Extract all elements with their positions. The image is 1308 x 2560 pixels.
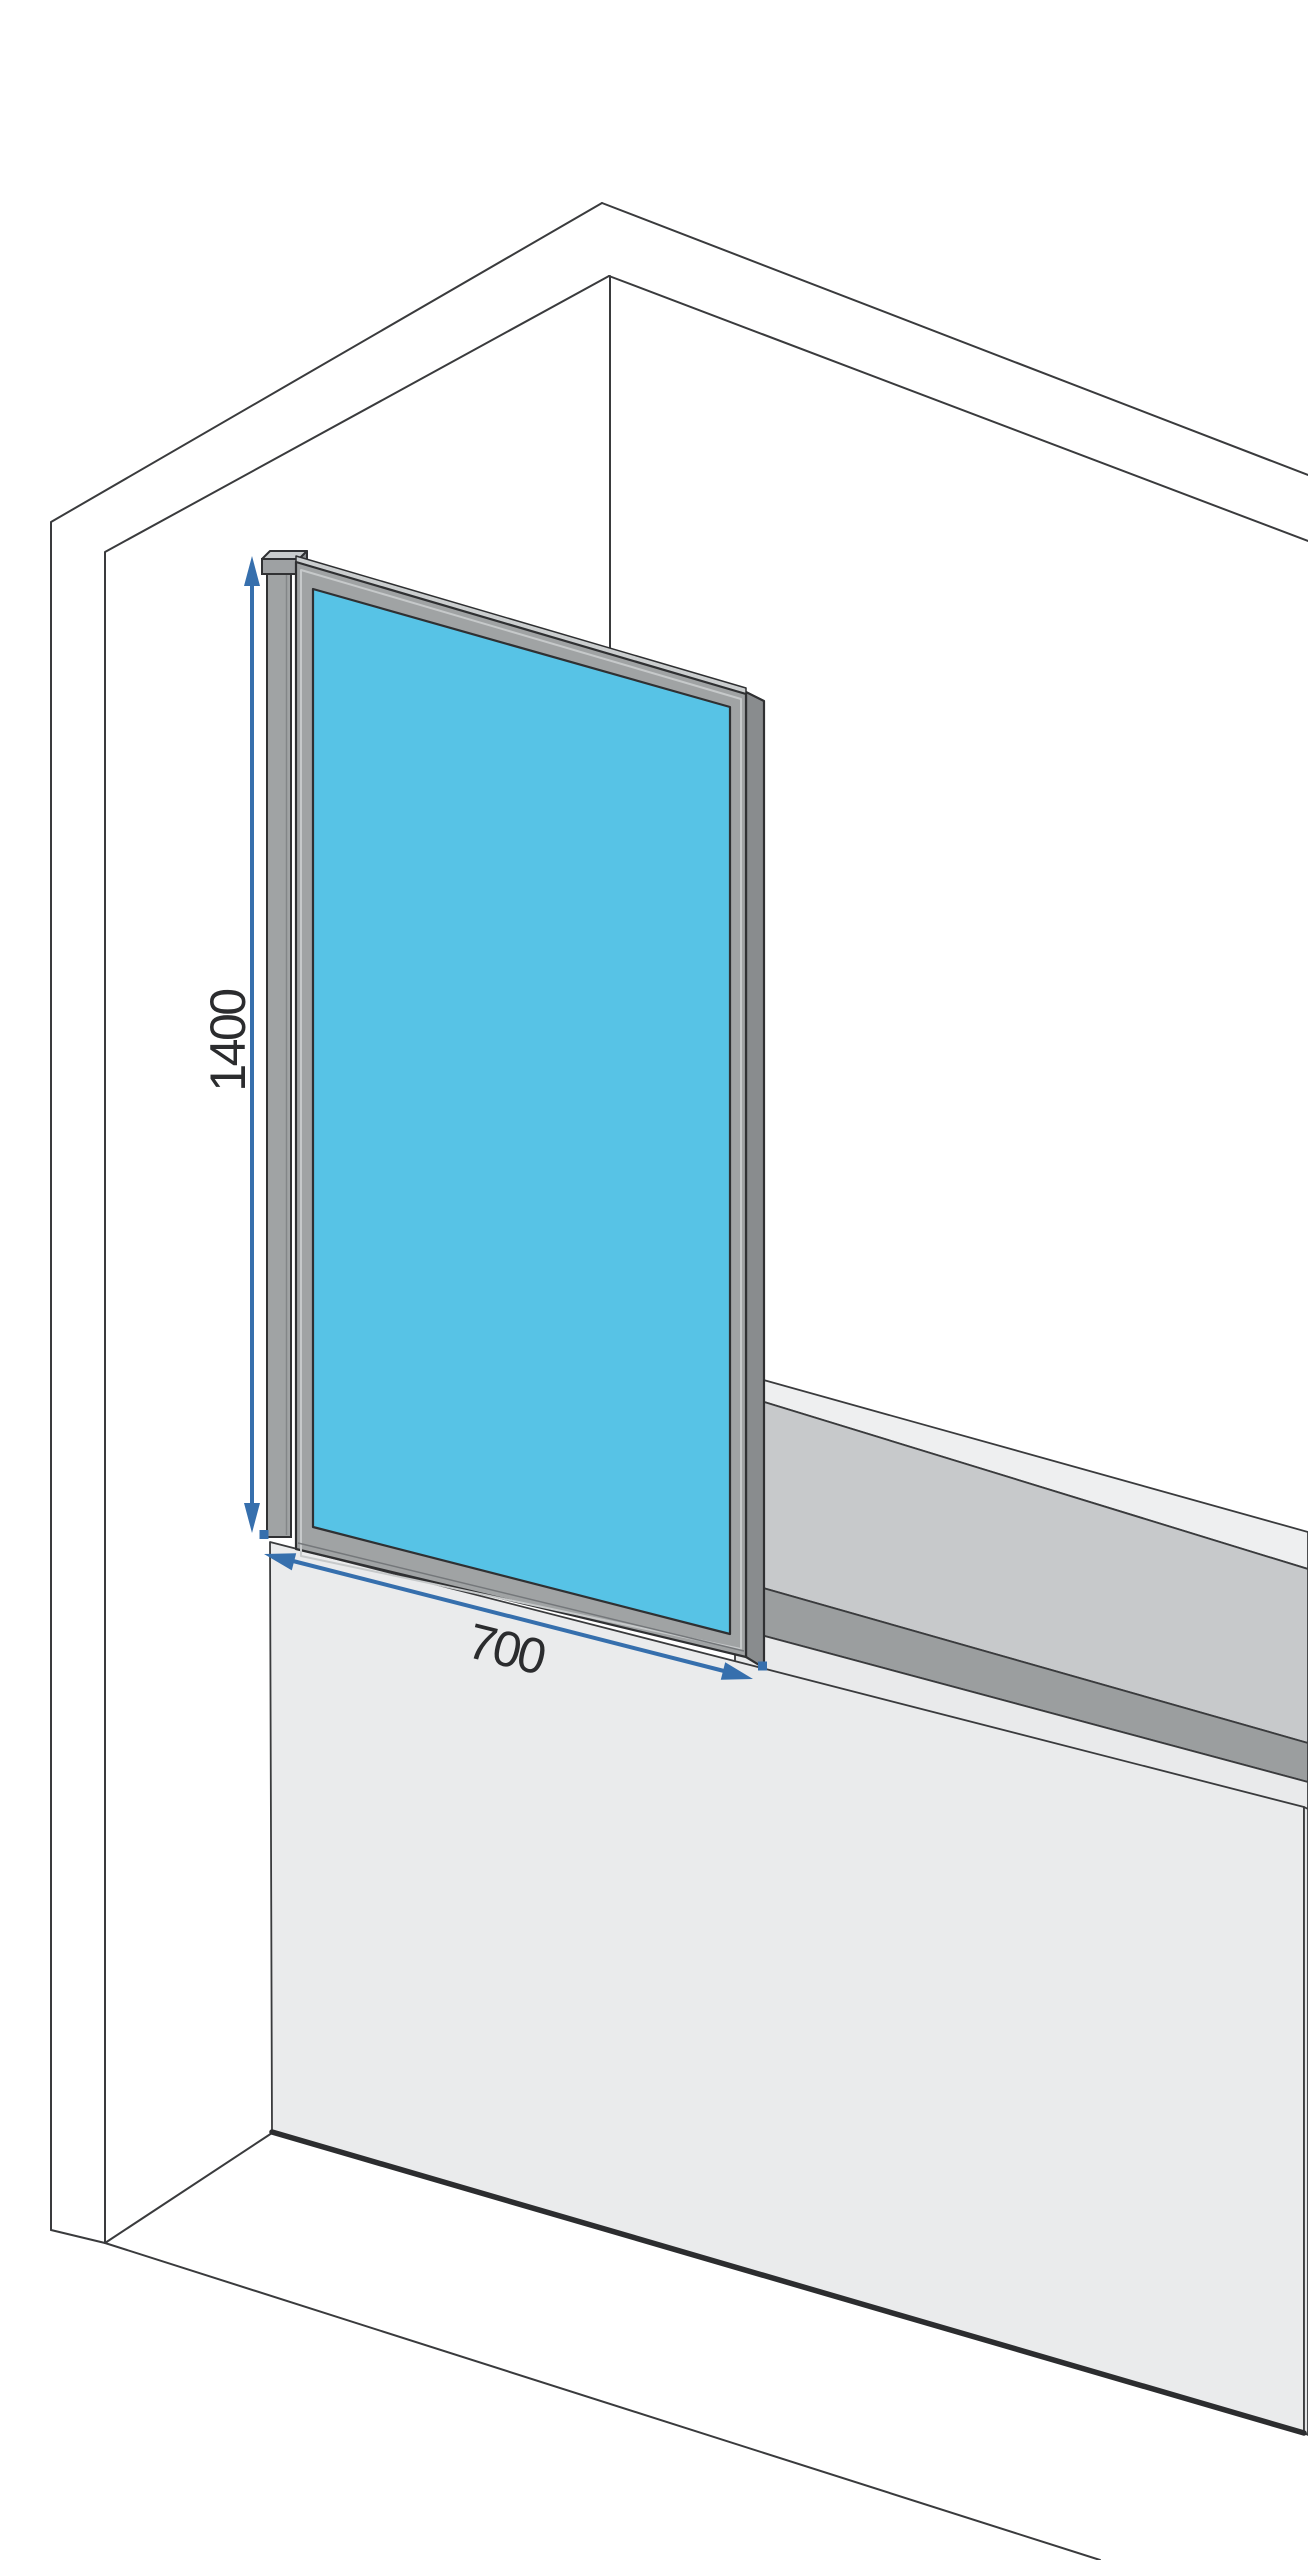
dimension-height-label: 1400 (200, 990, 256, 1092)
panel-side-face (746, 692, 764, 1668)
dimension-height-arrow-top (244, 556, 260, 586)
glass-pane (313, 589, 730, 1634)
wall-profile-bar (267, 558, 291, 1537)
glass-screen-panel (296, 556, 764, 1668)
tub-right-end-sliver (1304, 1807, 1308, 2435)
dimension-width-end-tick (758, 1662, 767, 1671)
technical-drawing-page: 700 1400 (0, 0, 1308, 2560)
bathtub-screen-diagram: 700 1400 (0, 0, 1308, 2560)
right-wall-outer-edge (602, 203, 1308, 475)
wall-profile-cap-front (262, 559, 299, 574)
right-wall-inner-edge (609, 276, 1308, 541)
dimension-height-end-tick (260, 1530, 269, 1539)
wall-floor-junction (105, 2133, 272, 2243)
wall-base-edge (51, 2230, 105, 2243)
dimension-height-arrow-bottom (244, 1503, 260, 1533)
